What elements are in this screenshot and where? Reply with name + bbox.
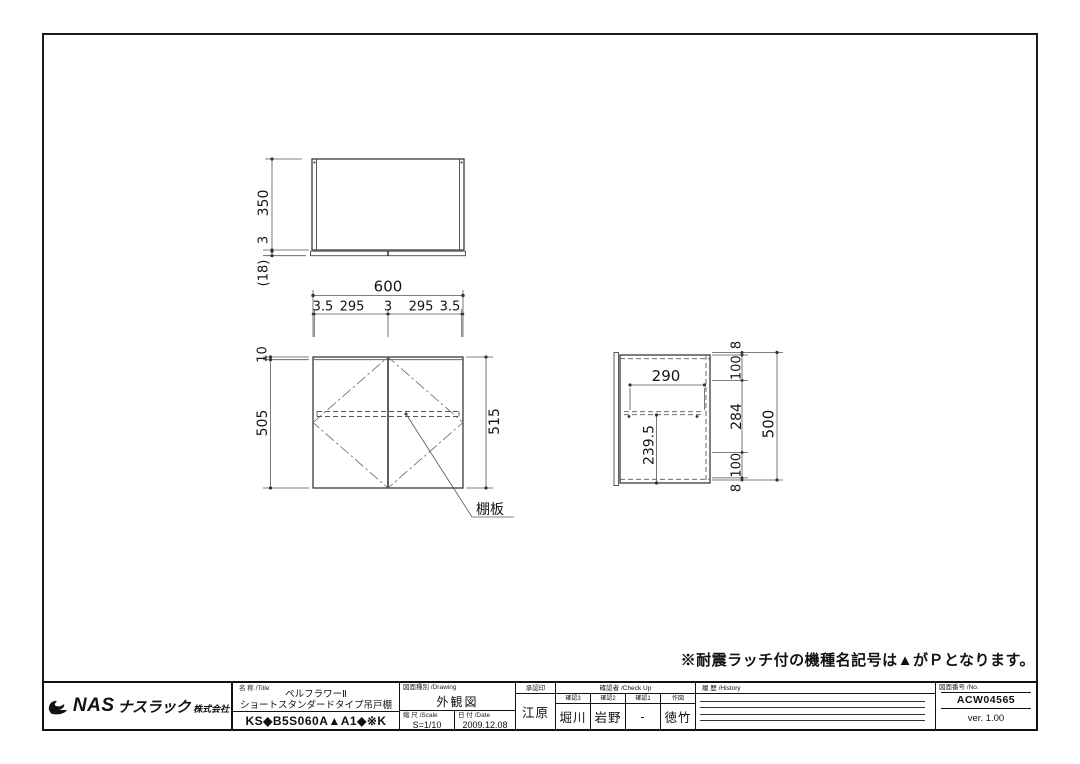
dim-side-chain-4: 100 — [730, 453, 745, 478]
check-group: 確認者 /Check Up 確認3 堀川 確認2 岩野 確認1 - 作図 徳竹 — [556, 683, 696, 729]
company-logo: NASナスラック株式会社 — [44, 683, 233, 729]
date-label: 日 付 /Date — [455, 711, 515, 720]
dim-chain-1: 3.5 — [313, 300, 334, 315]
check-col-3: 確認3 堀川 — [556, 694, 591, 729]
drawing-number-label: 図面番号 /No. — [936, 683, 1036, 692]
dim-side-shelf-height: 239.5 — [642, 425, 658, 465]
dim-chain-5: 3.5 — [440, 300, 461, 315]
drawing-number-value: ACW04565 — [941, 692, 1031, 709]
dim-side-total-height: 500 — [760, 410, 778, 439]
front-view: 棚板 — [313, 357, 514, 518]
dim-top-gap: 3 — [257, 236, 272, 244]
history-row — [700, 707, 925, 708]
check-col-2: 確認2 岩野 — [591, 694, 626, 729]
dim-chain-3: 3 — [384, 300, 392, 315]
top-view — [311, 159, 466, 256]
drawing-sheet: 350 3 (18) 棚板 — [0, 0, 1080, 764]
check-2-label: 確認2 — [591, 694, 625, 704]
dim-chain-2: 295 — [340, 300, 365, 315]
check-3-value: 堀川 — [556, 704, 590, 729]
check-col-draw: 作図 徳竹 — [661, 694, 695, 729]
approval-label: 承認印 — [516, 683, 555, 694]
scale-label: 縮 尺 /Scale — [400, 711, 454, 720]
approval-cell: 承認印 江原 — [516, 683, 556, 729]
dim-front-overall-height: 515 — [487, 408, 503, 435]
title-block: NASナスラック株式会社 名 称 /Title ペルフラワーⅡ ショートスタンダ… — [42, 681, 1038, 731]
shelf-label: 棚板 — [476, 502, 504, 518]
drafter-value: 徳竹 — [661, 704, 695, 729]
dim-side-chain-5: 8 — [730, 484, 745, 492]
history-label: 履 歴 /History — [696, 683, 935, 694]
dim-front-top-offset: 10 — [256, 346, 271, 363]
company-suffix: 株式会社 — [193, 702, 229, 715]
company-prefix: NAS — [73, 695, 115, 717]
history-lines — [696, 694, 935, 729]
drafter-label: 作図 — [661, 694, 695, 704]
drawing-type-value: 外観図 — [400, 693, 515, 710]
check-3-label: 確認3 — [556, 694, 590, 704]
title-label: 名 称 /Title — [236, 684, 269, 693]
dim-top-door: (18) — [257, 260, 272, 287]
dim-chain-4: 295 — [409, 300, 434, 315]
drawing-type-label: 図面種別 /Drawing — [400, 683, 515, 692]
seismic-latch-note: ※耐震ラッチ付の機種名記号は▲がＰとなります。 — [681, 649, 1035, 670]
swan-logo-icon — [46, 696, 70, 716]
company-name: ナスラック — [118, 696, 191, 717]
history-row — [700, 714, 925, 715]
drawing-version: ver. 1.00 — [936, 709, 1036, 730]
front-view-dimensions: 600 3.5 295 3 295 3.5 10 — [255, 278, 503, 490]
dim-side-chain-3: 284 — [729, 403, 745, 430]
drawing-type-cell: 図面種別 /Drawing 外観図 縮 尺 /Scale S=1/10 日 付 … — [400, 683, 516, 729]
side-shelf-dashed — [624, 412, 703, 418]
product-title-line2: ショートスタンダードタイプ吊戸棚 — [233, 700, 399, 711]
history-row — [700, 720, 925, 721]
dim-front-width: 600 — [374, 278, 403, 296]
check-1-value: - — [626, 704, 660, 729]
check-group-label: 確認者 /Check Up — [556, 683, 695, 694]
date-value: 2009.12.08 — [455, 720, 515, 730]
dim-side-chain-2: 100 — [730, 355, 745, 380]
drawing-number-cell: 図面番号 /No. ACW04565 ver. 1.00 — [936, 683, 1036, 729]
title-cell: 名 称 /Title ペルフラワーⅡ ショートスタンダードタイプ吊戸棚 KS◆B… — [233, 683, 400, 729]
history-row — [700, 701, 925, 702]
model-code: KS◆B5S060A▲A1◆※K — [233, 712, 399, 729]
dim-front-body-height: 505 — [255, 410, 271, 437]
scale-value: S=1/10 — [400, 720, 454, 730]
check-1-label: 確認1 — [626, 694, 660, 704]
history-cell: 履 歴 /History — [696, 683, 936, 729]
dim-side-shelf-depth: 290 — [652, 367, 681, 385]
dim-top-depth: 350 — [256, 190, 272, 217]
approval-value: 江原 — [516, 694, 555, 729]
check-col-1: 確認1 - — [626, 694, 661, 729]
top-view-dimensions: 350 3 (18) — [256, 157, 309, 286]
check-2-value: 岩野 — [591, 704, 625, 729]
dim-side-chain-1: 8 — [730, 341, 745, 349]
